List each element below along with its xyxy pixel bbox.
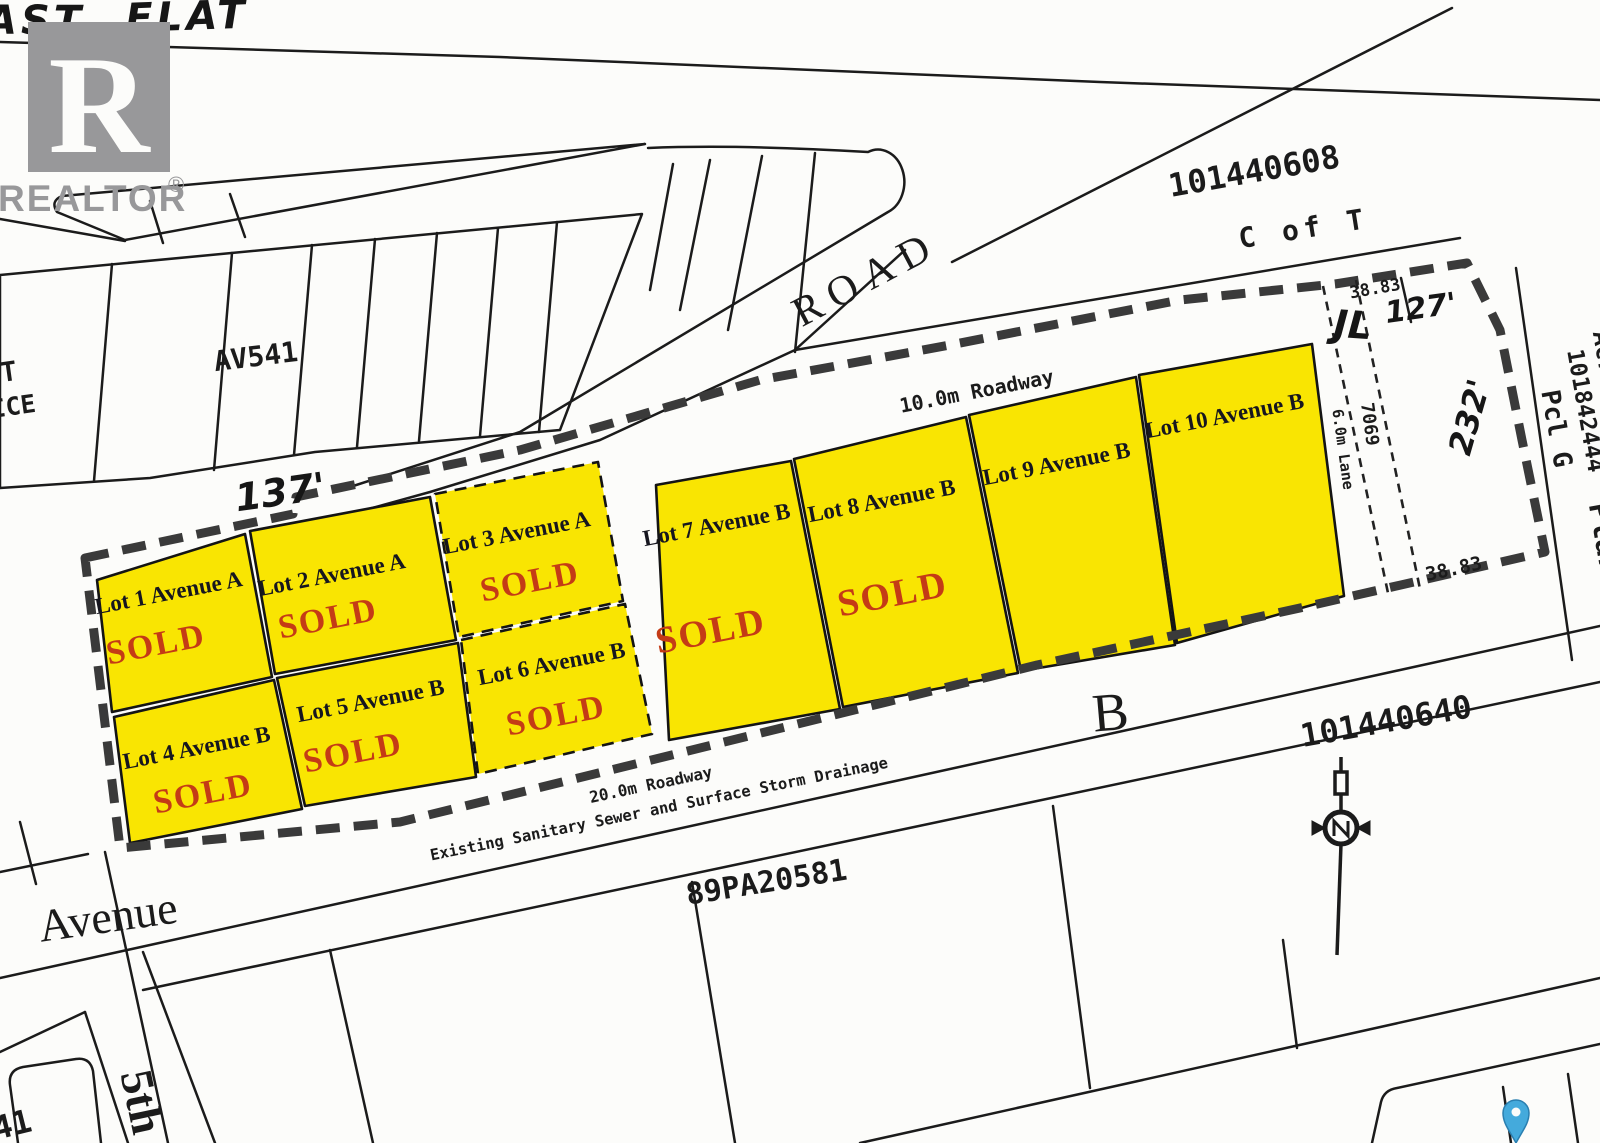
parcel-101440640-label: 101440640 (1297, 687, 1474, 755)
north-arrow-icon (1312, 757, 1370, 955)
block-b-label: B (1090, 681, 1131, 744)
plan-label: Plan (1581, 500, 1600, 577)
lot-10: Lot 10 Avenue B (1139, 344, 1344, 643)
registered-mark: ® (168, 172, 184, 197)
parcel-101440608-label: 101440608 (1165, 137, 1342, 205)
partial-ice-label: ICE (0, 389, 38, 424)
realtor-logo-letter: R (48, 28, 151, 183)
dim-137-label: 137' (232, 464, 328, 520)
road-label: ROAD (785, 221, 947, 336)
street-5th-label: 5th (111, 1065, 174, 1138)
realtor-wordmark: REALTOR (0, 178, 187, 219)
dim-7069-label: 7069 (1356, 401, 1383, 447)
lane-6m-label: 6.0m Lane (1328, 408, 1357, 491)
lot-1: Lot 1 Avenue A SOLD (93, 534, 272, 712)
partial-41-label: 41 (0, 1102, 35, 1143)
c-of-t-label: C of T (1236, 202, 1371, 255)
plat-map-scan[interactable]: Lot 1 Avenue A SOLD Lot 2 Avenue A SOLD … (0, 0, 1600, 1143)
location-pin-icon (1503, 1100, 1529, 1143)
dim-3883-bottom-label: 38.83 (1423, 552, 1484, 585)
partial-t-label: T (0, 356, 19, 389)
av541-parcel-row (0, 214, 642, 488)
lot-2: Lot 2 Avenue A SOLD (250, 497, 456, 674)
parcel-89pa20581-label: 89PA20581 (683, 853, 849, 913)
avenue-label: Avenue (35, 882, 180, 952)
dim-232-label: 232' (1441, 375, 1499, 459)
realtor-logo: R REALTOR ® (0, 22, 187, 219)
